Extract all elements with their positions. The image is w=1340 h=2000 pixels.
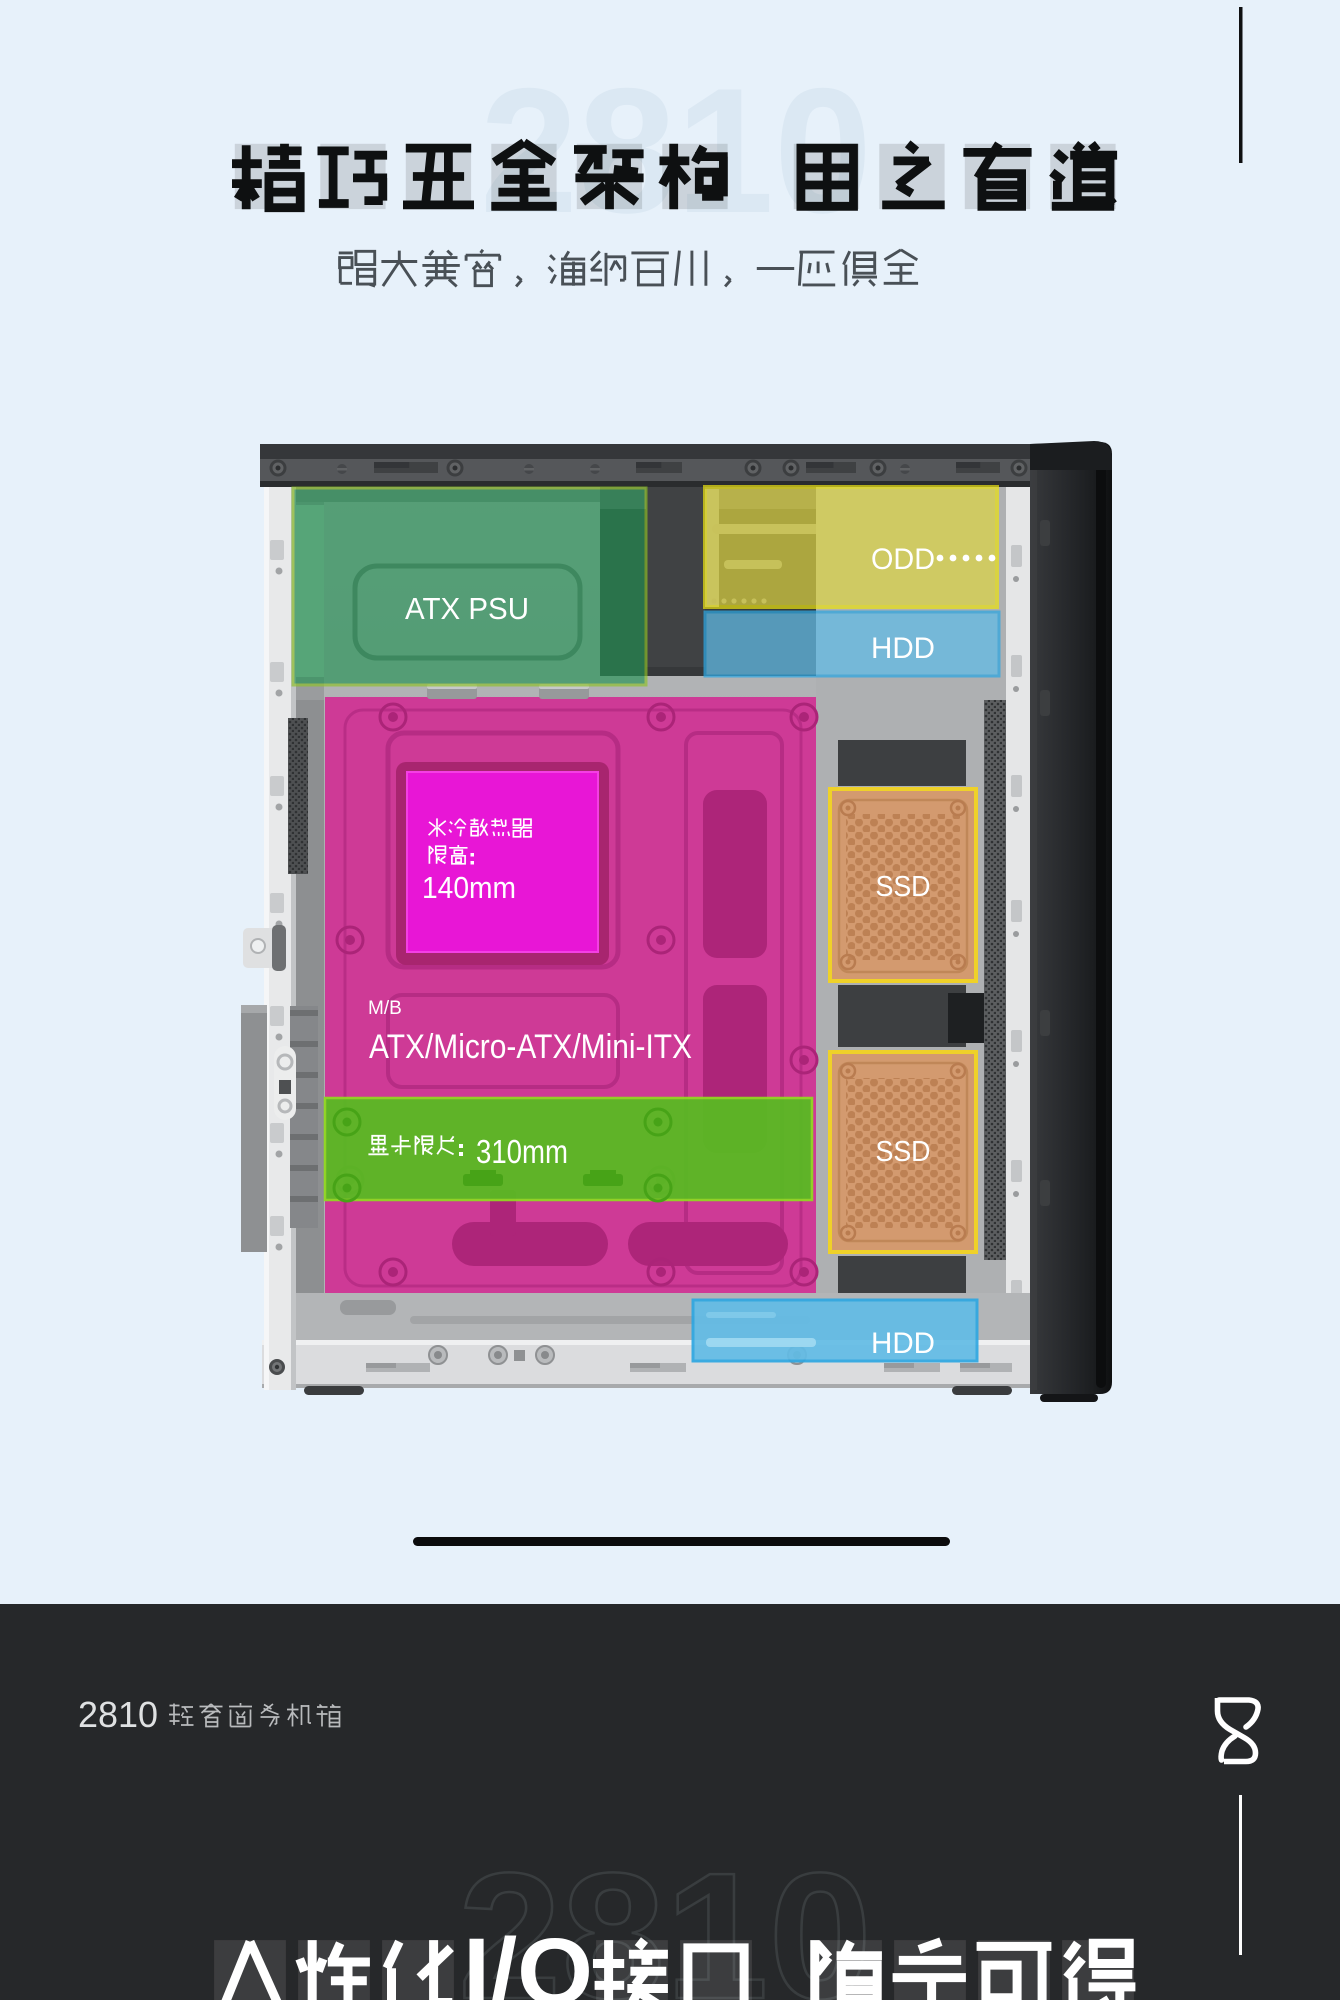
svg-text:140mm: 140mm (422, 870, 516, 905)
svg-text:310mm: 310mm (476, 1133, 568, 1170)
svg-text:M/B: M/B (368, 998, 402, 1019)
svg-text:HDD: HDD (871, 632, 935, 665)
svg-text:ODD: ODD (871, 543, 935, 576)
svg-text:2810: 2810 (78, 1694, 158, 1735)
svg-text:SSD: SSD (876, 1136, 931, 1168)
svg-text:HDD: HDD (871, 1327, 935, 1360)
svg-text:ATX/Micro-ATX/Mini-ITX: ATX/Micro-ATX/Mini-ITX (369, 1028, 692, 1066)
svg-text:ATX PSU: ATX PSU (405, 591, 529, 626)
svg-text:I/O: I/O (463, 1919, 593, 2000)
svg-text:SSD: SSD (876, 871, 931, 903)
